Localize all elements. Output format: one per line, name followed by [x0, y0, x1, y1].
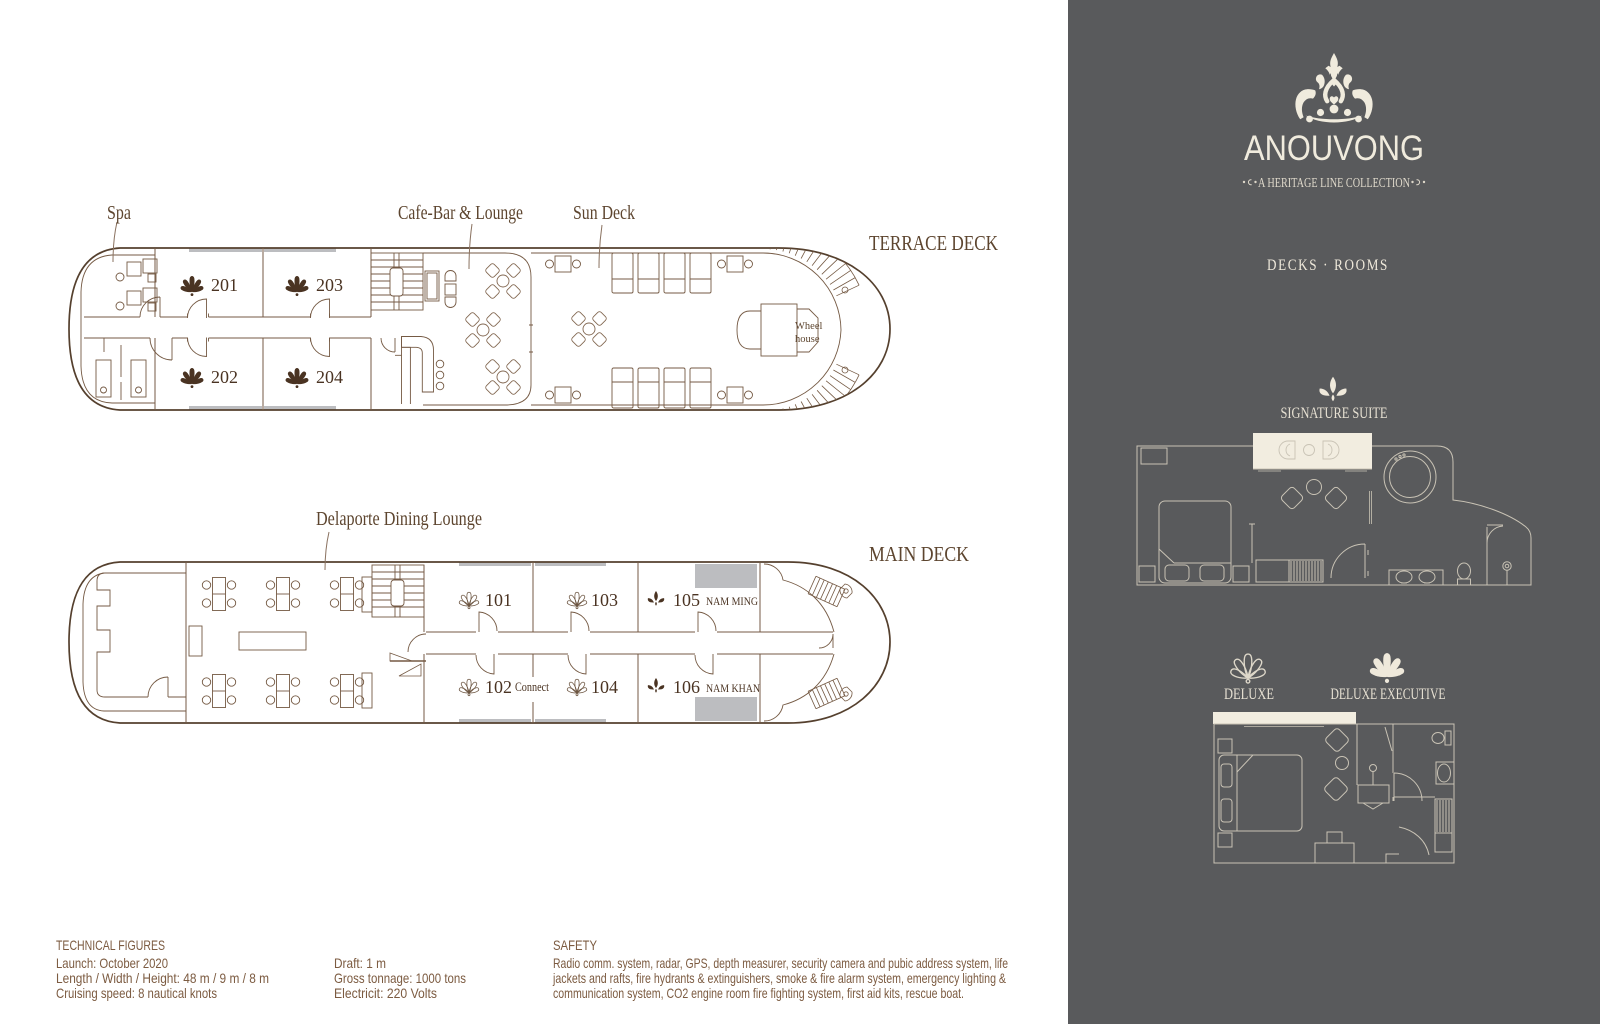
svg-text:Length / Width / Height: 48 m: Length / Width / Height: 48 m / 9 m / 8 … [56, 970, 269, 986]
svg-text:103: 103 [591, 590, 618, 610]
svg-text:201: 201 [211, 275, 238, 295]
svg-text:communication system, CO2 engi: communication system, CO2 engine room fi… [553, 985, 964, 1001]
svg-text:SIGNATURE SUITE: SIGNATURE SUITE [1281, 405, 1388, 422]
svg-text:house: house [795, 334, 820, 345]
svg-text:202: 202 [211, 367, 238, 387]
svg-text:Gross tonnage: 1000 tons: Gross tonnage: 1000 tons [334, 970, 466, 986]
svg-text:Spa: Spa [107, 202, 131, 224]
svg-text:DELUXE: DELUXE [1224, 686, 1274, 703]
svg-text:jackets and rafts, fire hydran: jackets and rafts, fire hydrants & extin… [552, 970, 1006, 986]
svg-text:Cafe-Bar & Lounge: Cafe-Bar & Lounge [398, 202, 523, 224]
svg-text:Draft: 1 m: Draft: 1 m [334, 955, 386, 971]
svg-text:Sun Deck: Sun Deck [573, 202, 635, 224]
svg-text:Cruising speed: 8 nautical kno: Cruising speed: 8 nautical knots [56, 985, 217, 1001]
svg-text:DECKS · ROOMS: DECKS · ROOMS [1267, 257, 1389, 274]
svg-text:DELUXE EXECUTIVE: DELUXE EXECUTIVE [1331, 686, 1446, 703]
svg-text:101: 101 [485, 590, 512, 610]
svg-text:TECHNICAL FIGURES: TECHNICAL FIGURES [56, 937, 165, 953]
svg-text:Connect: Connect [515, 679, 549, 694]
svg-text:105: 105 [673, 590, 700, 610]
svg-text:204: 204 [316, 367, 343, 387]
svg-text:SAFETY: SAFETY [553, 937, 598, 953]
svg-text:NAM KHAN: NAM KHAN [706, 681, 760, 695]
svg-text:Wheel: Wheel [795, 321, 822, 332]
svg-text:NAM MING: NAM MING [706, 594, 758, 608]
svg-text:104: 104 [591, 677, 618, 697]
svg-text:TERRACE DECK: TERRACE DECK [869, 231, 998, 255]
svg-text:Electricit: 220 Volts: Electricit: 220 Volts [334, 985, 437, 1001]
svg-text:A HERITAGE LINE COLLECTION: A HERITAGE LINE COLLECTION [1258, 175, 1410, 190]
svg-text:106: 106 [673, 677, 700, 697]
svg-text:Radio comm. system, radar, GPS: Radio comm. system, radar, GPS, depth me… [553, 955, 1008, 971]
svg-text:ANOUVONG: ANOUVONG [1244, 129, 1424, 168]
svg-text:MAIN DECK: MAIN DECK [869, 542, 969, 566]
svg-text:Launch: October 2020: Launch: October 2020 [56, 955, 168, 971]
svg-text:203: 203 [316, 275, 343, 295]
svg-text:102: 102 [485, 677, 512, 697]
svg-text:Delaporte Dining Lounge: Delaporte Dining Lounge [316, 508, 482, 530]
